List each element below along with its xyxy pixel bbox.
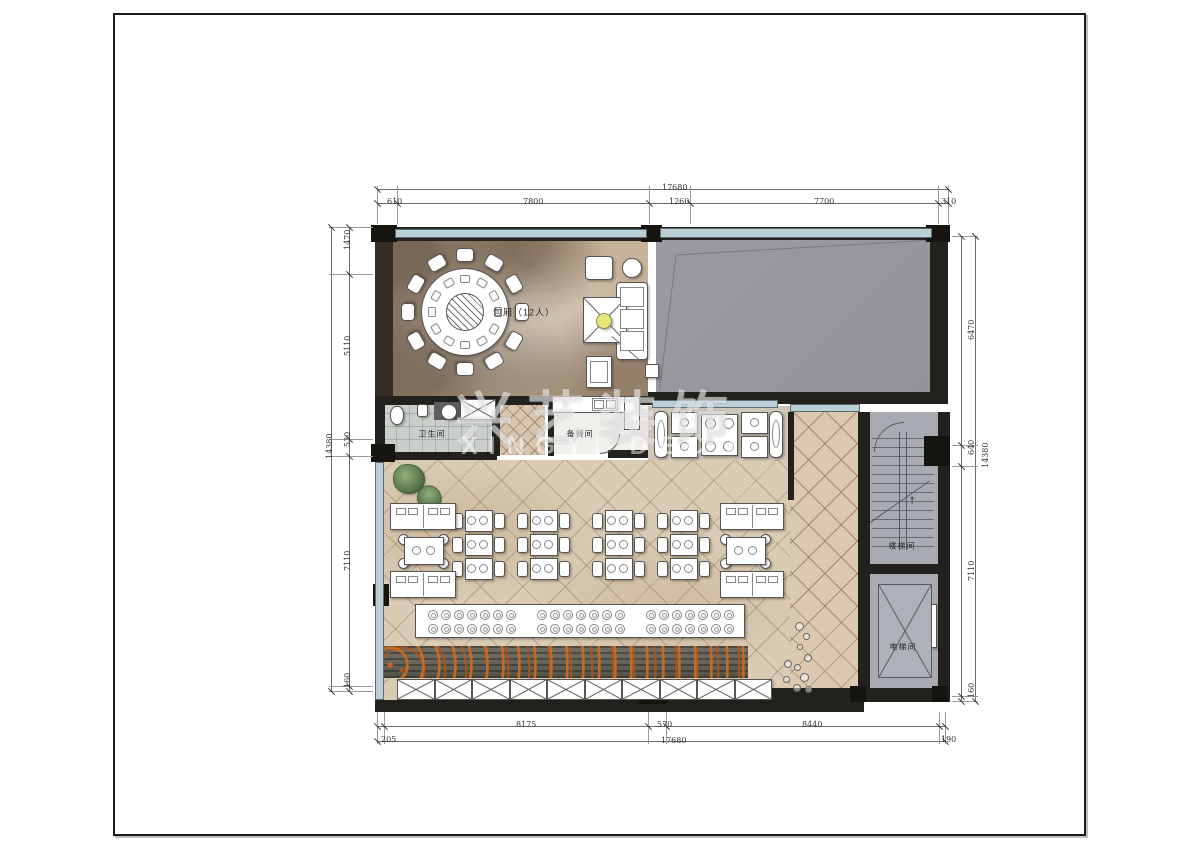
- curtain-wall-glazing: [652, 400, 778, 408]
- booth-seat-pad: [750, 418, 759, 427]
- pebble-decor: [800, 673, 809, 682]
- place-setting-inner: [470, 627, 475, 632]
- seat-pad: [726, 508, 736, 515]
- dining-table: [404, 537, 444, 565]
- place-setting-inner: [540, 613, 545, 618]
- window-casework: [472, 679, 510, 700]
- pebble-decor: [797, 644, 803, 650]
- place-setting-inner: [470, 613, 475, 618]
- plate: [734, 546, 743, 555]
- chair: [559, 513, 570, 529]
- window-casework: [585, 679, 623, 700]
- chair: [592, 537, 603, 553]
- plan-scene: ↑ 包厢（12人） 卫生间 备餐间 楼梯间: [0, 0, 1200, 849]
- plate: [532, 564, 541, 573]
- chair: [592, 513, 603, 529]
- dim-line: [349, 227, 350, 691]
- booth-chair: [723, 418, 734, 429]
- dim-line: [377, 203, 948, 204]
- window-casework: [697, 679, 735, 700]
- floor-lamp-table: [645, 364, 659, 378]
- side-table-inner: [590, 361, 608, 383]
- place-setting-inner: [714, 627, 719, 632]
- place-setting-inner: [444, 613, 449, 618]
- place-setting-inner: [431, 627, 436, 632]
- toilet: [390, 406, 404, 425]
- side-table-round: [622, 258, 642, 278]
- curtain-wall-glazing: [790, 404, 860, 412]
- chair: [494, 513, 505, 529]
- seat-pad: [408, 576, 418, 583]
- place-setting-inner: [618, 613, 623, 618]
- sofa-cushion: [620, 287, 644, 307]
- plate: [467, 564, 476, 573]
- seat-pad: [726, 576, 736, 583]
- place-setting-inner: [579, 627, 584, 632]
- plate: [467, 540, 476, 549]
- place-setting-inner: [592, 627, 597, 632]
- booth-seat-pad: [750, 442, 759, 451]
- dining-table: [726, 537, 766, 565]
- wall: [930, 240, 948, 392]
- dim-line: [952, 466, 978, 467]
- chair: [657, 537, 668, 553]
- pebble-decor: [805, 686, 812, 693]
- chair: [699, 513, 710, 529]
- dim-line: [975, 236, 976, 701]
- place-setting-inner: [662, 613, 667, 618]
- pantry-sink-bowl: [606, 400, 616, 409]
- window-casework: [660, 679, 698, 700]
- elevator-shaft: [878, 584, 932, 678]
- chair: [401, 303, 415, 321]
- plate: [672, 564, 681, 573]
- window-casework: [735, 679, 773, 700]
- plate: [619, 516, 628, 525]
- place-setting-inner: [483, 613, 488, 618]
- seat-pad: [408, 508, 418, 515]
- plate: [672, 540, 681, 549]
- seat-pad: [738, 576, 748, 583]
- pantry-sink-bowl: [594, 400, 604, 409]
- window-casework: [510, 679, 548, 700]
- wall: [788, 412, 794, 500]
- seat-pad: [756, 508, 766, 515]
- place-setting-inner: [509, 613, 514, 618]
- place-setting-inner: [553, 613, 558, 618]
- booth-seat-pad: [680, 418, 689, 427]
- bench-divider: [423, 505, 424, 528]
- plate: [607, 516, 616, 525]
- sink: [441, 404, 457, 420]
- plate: [467, 516, 476, 525]
- chair: [559, 561, 570, 577]
- curtain-wall-glazing: [395, 229, 647, 238]
- seat-pad: [396, 508, 406, 515]
- column: [850, 686, 866, 702]
- place-setting-inner: [457, 627, 462, 632]
- place-setting-inner: [727, 627, 732, 632]
- place-setting-inner: [727, 613, 732, 618]
- place-setting-inner: [579, 613, 584, 618]
- plate: [426, 546, 435, 555]
- seat-pad: [768, 508, 778, 515]
- plate: [619, 540, 628, 549]
- pebble-decor: [794, 664, 801, 671]
- chair: [494, 537, 505, 553]
- plate: [460, 275, 470, 283]
- sofa-cushion: [620, 331, 644, 351]
- place-setting-inner: [688, 627, 693, 632]
- stair-up-arrow: ↑: [908, 496, 916, 507]
- elevator-door: [931, 604, 937, 648]
- plate: [544, 540, 553, 549]
- curtain-wall-glazing: [375, 462, 384, 700]
- pantry-counter-side: [624, 396, 640, 430]
- plate: [532, 540, 541, 549]
- window-casework: [435, 679, 473, 700]
- seat-pad: [738, 508, 748, 515]
- pebble-decor: [795, 622, 804, 631]
- place-setting-inner: [688, 613, 693, 618]
- chair: [699, 537, 710, 553]
- plate: [684, 516, 693, 525]
- chair: [559, 537, 570, 553]
- place-setting-inner: [605, 627, 610, 632]
- plate: [479, 516, 488, 525]
- bench-divider: [752, 505, 753, 528]
- chair: [456, 362, 474, 376]
- pantry-label: 备餐间: [567, 429, 594, 440]
- place-setting-inner: [592, 613, 597, 618]
- drawing-sheet: ↑ 包厢（12人） 卫生间 备餐间 楼梯间: [0, 0, 1200, 849]
- chair: [592, 561, 603, 577]
- column: [371, 444, 395, 462]
- column: [371, 225, 397, 242]
- place-setting-inner: [714, 613, 719, 618]
- wall: [383, 452, 497, 460]
- plate: [619, 564, 628, 573]
- booth-bench-pad: [772, 420, 780, 448]
- place-setting-inner: [701, 613, 706, 618]
- plate: [479, 540, 488, 549]
- place-setting-inner: [649, 613, 654, 618]
- chair: [456, 248, 474, 262]
- pebble-decor: [804, 654, 812, 662]
- place-setting-inner: [649, 627, 654, 632]
- pebble-decor: [783, 676, 790, 683]
- chair: [634, 513, 645, 529]
- place-setting-inner: [553, 627, 558, 632]
- booth-chair: [723, 441, 734, 452]
- restroom-label: 卫生间: [419, 429, 446, 440]
- sofa-cushion: [620, 309, 644, 329]
- place-setting-inner: [675, 627, 680, 632]
- window-casework: [397, 679, 435, 700]
- plate: [672, 516, 681, 525]
- window-casework: [622, 679, 660, 700]
- place-setting-inner: [431, 613, 436, 618]
- seat-pad: [440, 508, 450, 515]
- wall: [375, 240, 393, 398]
- plate: [532, 516, 541, 525]
- plate: [544, 564, 553, 573]
- dim-line: [331, 227, 332, 691]
- place-setting-inner: [675, 613, 680, 618]
- wall: [608, 450, 648, 458]
- place-setting-inner: [483, 627, 488, 632]
- wall: [858, 412, 870, 700]
- private-room-label: 包厢（12人）: [493, 306, 555, 319]
- place-setting-inner: [444, 627, 449, 632]
- armchair: [585, 256, 613, 280]
- bench-divider: [752, 573, 753, 596]
- booth-chair: [705, 441, 716, 452]
- plate: [428, 307, 436, 317]
- window-casework: [547, 679, 585, 700]
- wall: [862, 564, 946, 574]
- seat-pad: [428, 508, 438, 515]
- place-setting-inner: [605, 613, 610, 618]
- lazy-susan: [446, 293, 484, 331]
- plate: [544, 516, 553, 525]
- chair: [699, 561, 710, 577]
- chair: [634, 561, 645, 577]
- chair: [494, 561, 505, 577]
- place-setting-inner: [618, 627, 623, 632]
- seat-pad: [440, 576, 450, 583]
- place-setting-inner: [509, 627, 514, 632]
- place-setting-inner: [701, 627, 706, 632]
- seat-pad: [396, 576, 406, 583]
- plate: [479, 564, 488, 573]
- booth-chair: [705, 418, 716, 429]
- chair: [657, 561, 668, 577]
- place-setting-inner: [566, 613, 571, 618]
- pebble-decor: [803, 633, 810, 640]
- chair: [452, 537, 463, 553]
- curtain-wall-glazing: [660, 228, 932, 238]
- plate: [684, 564, 693, 573]
- plate: [412, 546, 421, 555]
- stairwell-label: 楼梯间: [889, 541, 916, 552]
- corridor-floor: [790, 412, 860, 702]
- plate: [607, 564, 616, 573]
- bench-divider: [423, 573, 424, 596]
- seat-pad: [756, 576, 766, 583]
- seat-pad: [768, 576, 778, 583]
- urinal: [417, 404, 428, 417]
- elevator-label: 电梯间: [890, 642, 917, 653]
- plate: [684, 540, 693, 549]
- vestibule-floor: [496, 402, 545, 455]
- plate: [748, 546, 757, 555]
- chair: [517, 513, 528, 529]
- booth-bench-pad: [657, 420, 665, 448]
- column: [924, 436, 950, 466]
- chair: [657, 513, 668, 529]
- restroom-cabinet: [460, 399, 496, 420]
- pebble-decor: [793, 684, 801, 692]
- column: [932, 686, 948, 702]
- plate: [460, 341, 470, 349]
- place-setting-inner: [662, 627, 667, 632]
- place-setting-inner: [566, 627, 571, 632]
- chair: [517, 561, 528, 577]
- place-setting-inner: [540, 627, 545, 632]
- void-room-outline: [656, 236, 946, 401]
- plate: [607, 540, 616, 549]
- booth-seat-pad: [680, 442, 689, 451]
- place-setting-inner: [496, 627, 501, 632]
- seat-pad: [428, 576, 438, 583]
- table-lamp: [596, 313, 612, 329]
- place-setting-inner: [496, 613, 501, 618]
- chair: [517, 537, 528, 553]
- place-setting-inner: [457, 613, 462, 618]
- planting-strip: [383, 646, 748, 678]
- pebble-decor: [784, 660, 792, 668]
- chair: [634, 537, 645, 553]
